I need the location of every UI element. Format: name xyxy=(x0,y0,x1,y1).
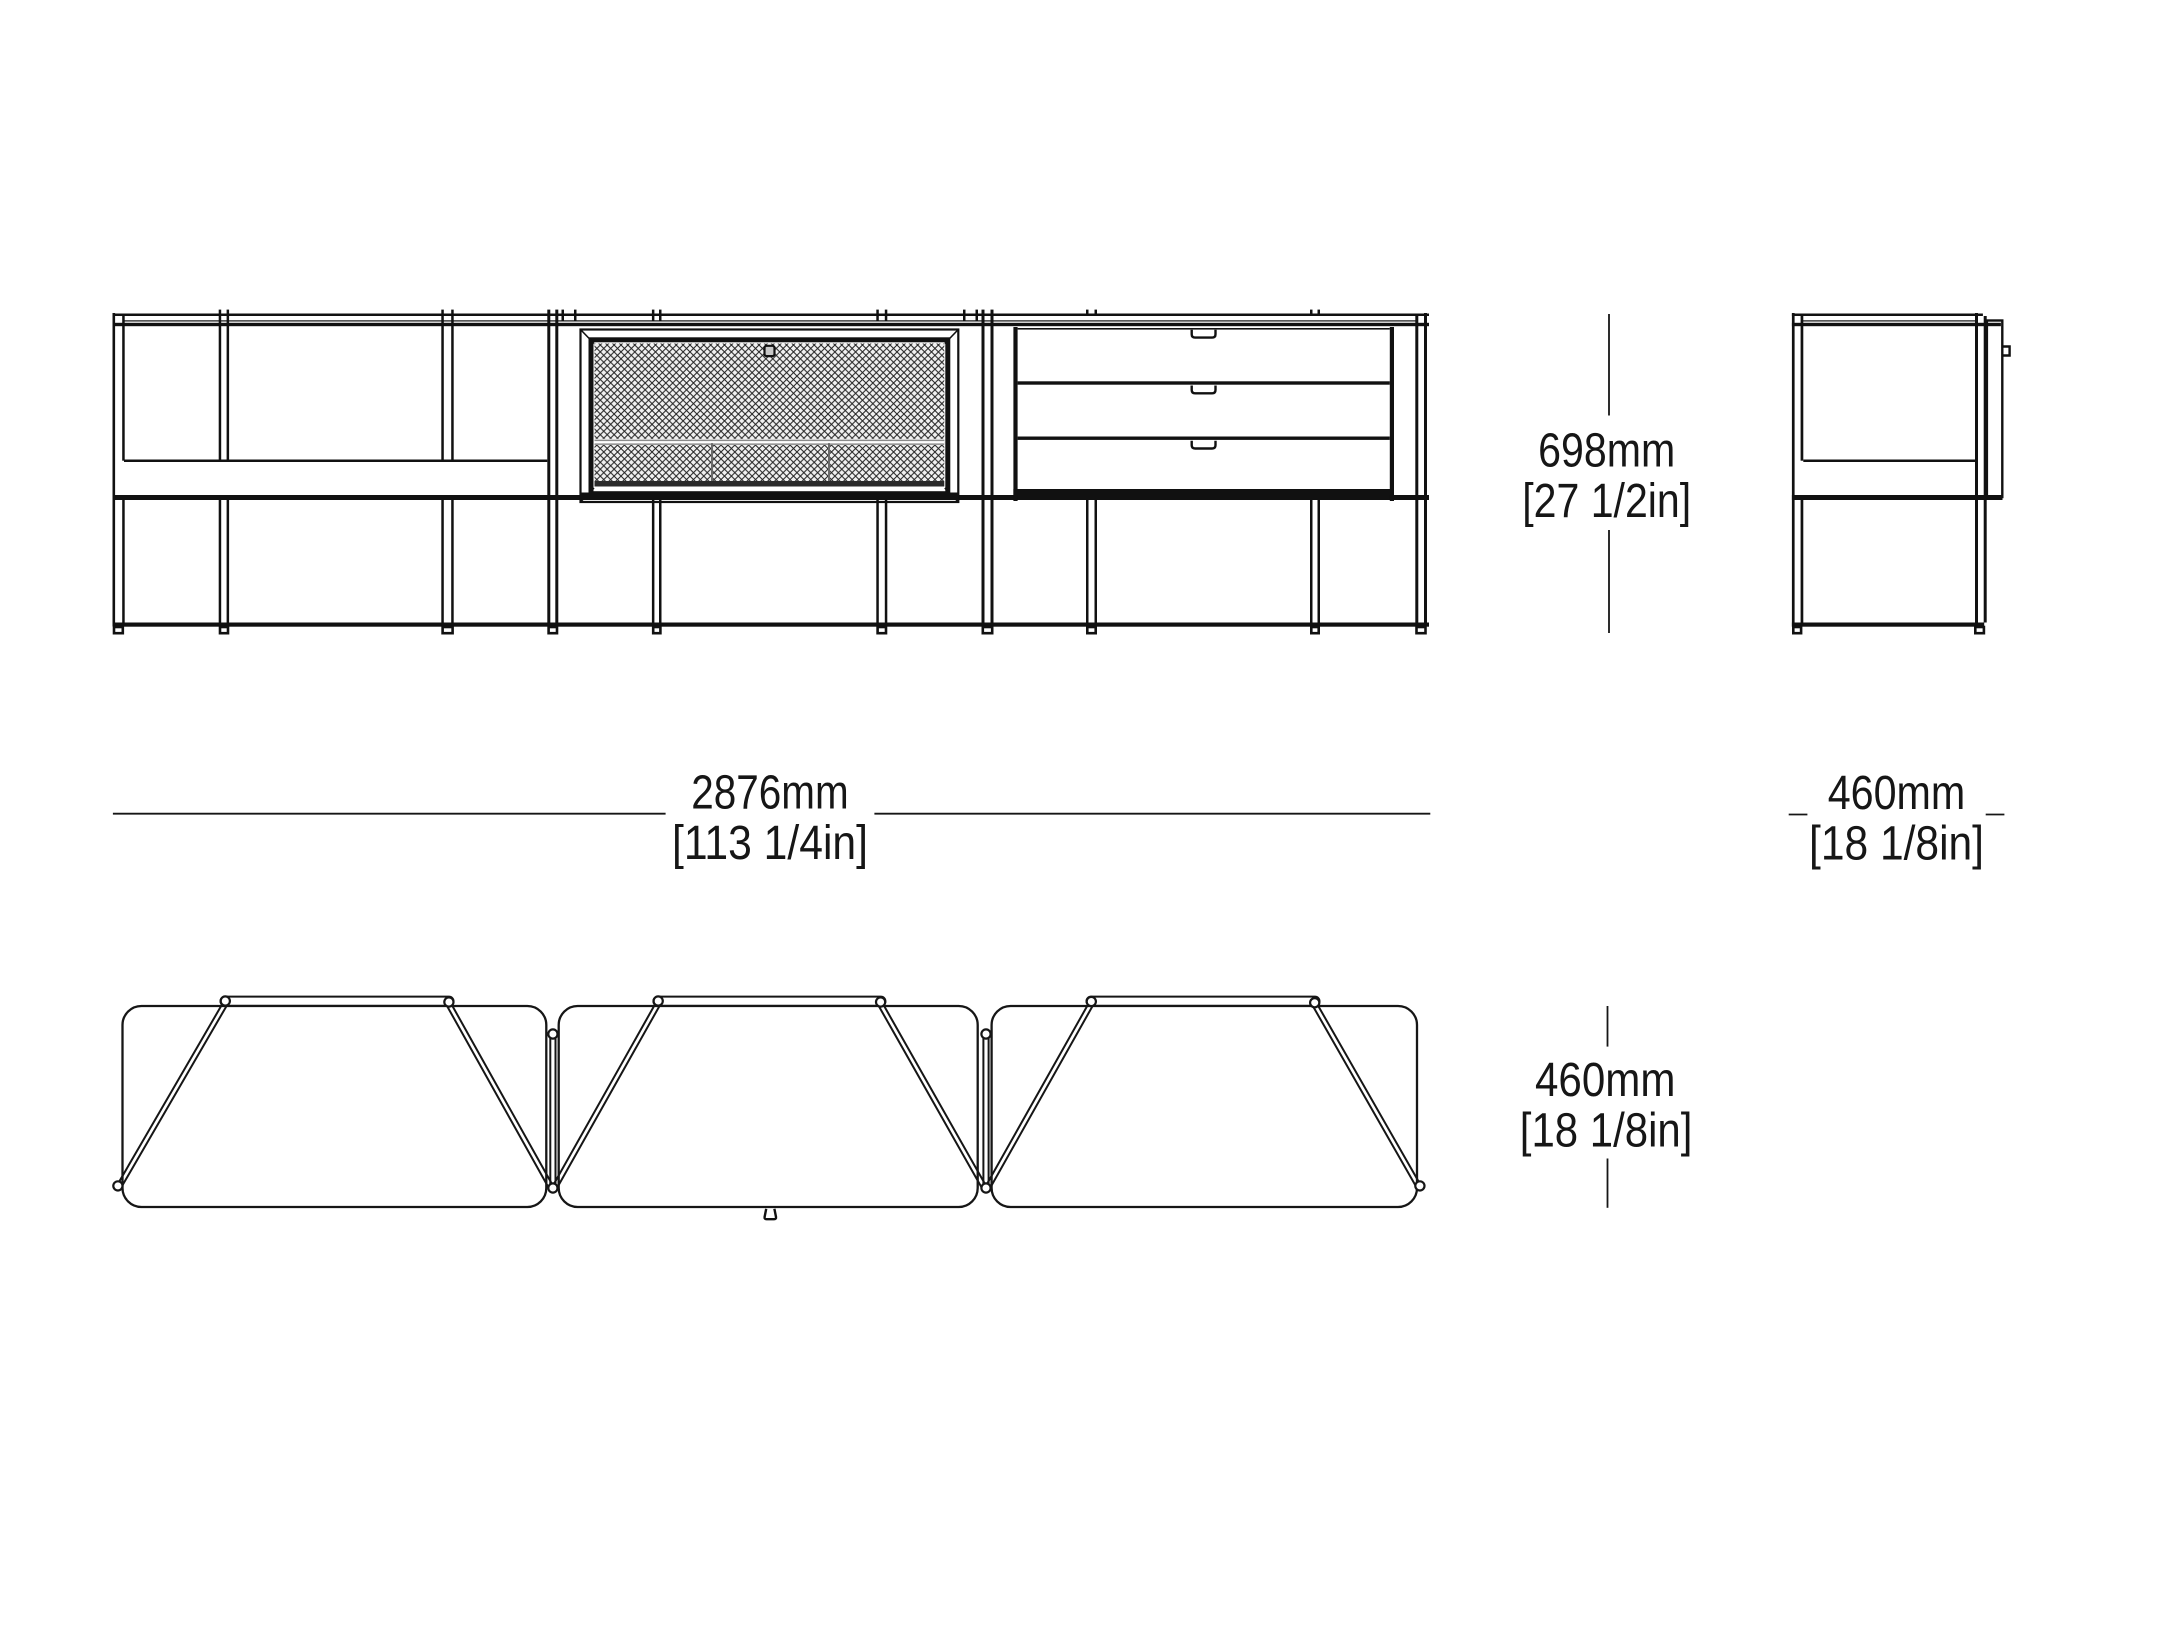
svg-text:[18 1/8in]: [18 1/8in] xyxy=(1520,1104,1693,1158)
svg-text:460mm: 460mm xyxy=(1828,766,1966,820)
svg-text:[18 1/8in]: [18 1/8in] xyxy=(1809,817,1984,871)
svg-text:698mm: 698mm xyxy=(1538,423,1675,477)
svg-text:[113 1/4in]: [113 1/4in] xyxy=(672,816,868,870)
svg-text:[27 1/2in]: [27 1/2in] xyxy=(1522,474,1691,528)
svg-text:460mm: 460mm xyxy=(1535,1053,1675,1107)
svg-text:2876mm: 2876mm xyxy=(691,766,848,820)
